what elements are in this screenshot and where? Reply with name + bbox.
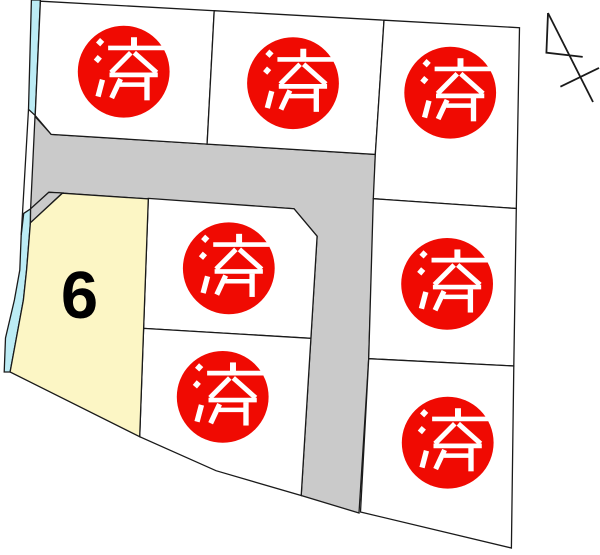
- svg-text:6: 6: [61, 258, 98, 333]
